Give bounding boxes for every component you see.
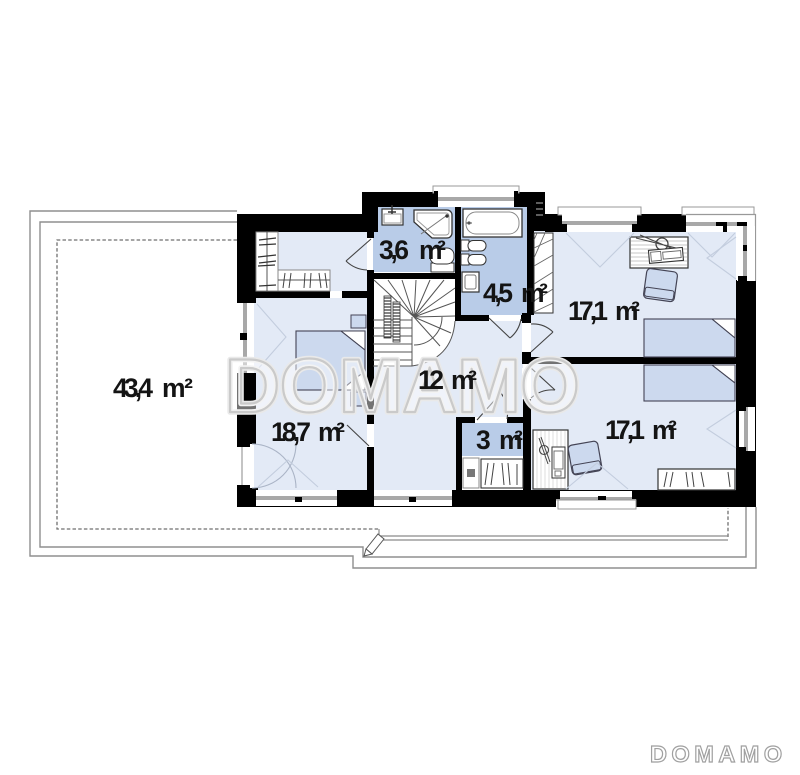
svg-text:DOMAMO: DOMAMO — [650, 741, 787, 767]
svg-text:18,7: 18,7 — [271, 417, 311, 447]
svg-text:m²: m² — [499, 425, 523, 455]
svg-text:43,4: 43,4 — [113, 373, 153, 403]
svg-text:12: 12 — [418, 365, 444, 395]
svg-text:17,1: 17,1 — [568, 296, 608, 326]
svg-text:3: 3 — [476, 425, 491, 455]
svg-text:m²: m² — [615, 296, 640, 326]
svg-text:m²: m² — [521, 278, 548, 308]
svg-text:3,6: 3,6 — [379, 235, 409, 265]
svg-text:m²: m² — [162, 373, 193, 403]
svg-text:17,1: 17,1 — [605, 415, 645, 445]
svg-text:m²: m² — [419, 235, 446, 265]
svg-text:m²: m² — [652, 415, 677, 445]
svg-text:m²: m² — [451, 365, 477, 395]
svg-text:4,5: 4,5 — [483, 278, 513, 308]
svg-text:m²: m² — [318, 417, 345, 447]
